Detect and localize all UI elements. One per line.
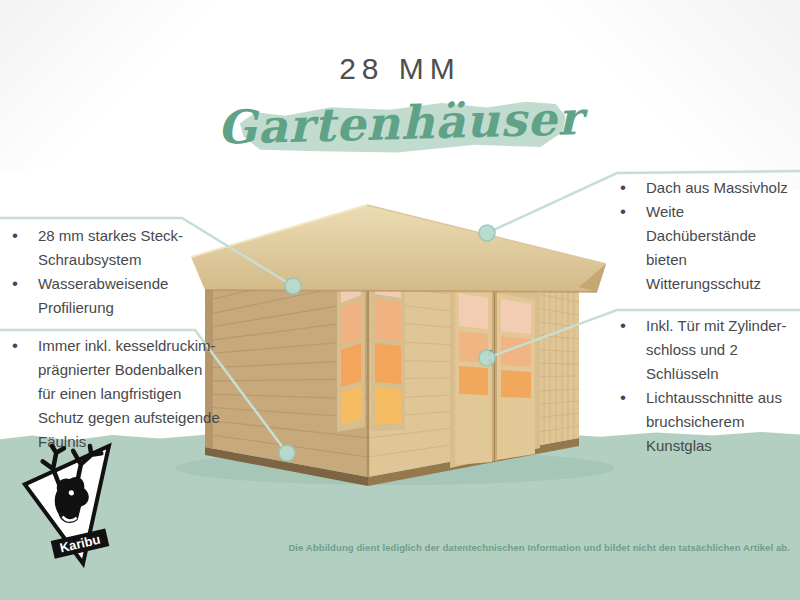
- feature-text: Lichtausschnitte aus bruchsicherem Kunst…: [646, 386, 796, 458]
- feature-item: Weite Dachüberstände bieten Witterungssc…: [620, 200, 796, 296]
- feature-text: Immer inkl. kesseldruckim- prägnierter B…: [38, 334, 220, 454]
- promo-page: 28 MM Gartenhäuser: [0, 0, 800, 600]
- bullet-dot: [620, 200, 646, 296]
- bullet-dot: [12, 334, 38, 454]
- feature-block-construction: 28 mm starkes Steck- Schraubsystem Wasse…: [12, 224, 217, 320]
- feature-text: Inkl. Tür mit Zylinder- schloss und 2 Sc…: [646, 314, 796, 386]
- feature-text: Wasserabweisende Profilierung: [38, 272, 168, 320]
- feature-item: Dach aus Massivholz: [620, 176, 796, 200]
- feature-text: Dach aus Massivholz: [646, 176, 788, 200]
- bullet-dot: [12, 272, 38, 320]
- karibu-logo: Karibu: [13, 435, 130, 576]
- disclaimer-text: Die Abbildung dient lediglich der datent…: [270, 542, 790, 553]
- callout-dot-foundation: [279, 445, 295, 461]
- callout-dot-door: [479, 350, 495, 366]
- feature-item: 28 mm starkes Steck- Schraubsystem: [12, 224, 217, 272]
- feature-text: 28 mm starkes Steck- Schraubsystem: [38, 224, 183, 272]
- callout-dot-roof: [479, 225, 495, 241]
- feature-item: Inkl. Tür mit Zylinder- schloss und 2 Sc…: [620, 314, 796, 386]
- feature-item: Wasserabweisende Profilierung: [12, 272, 217, 320]
- bullet-dot: [620, 314, 646, 386]
- feature-text: Weite Dachüberstände bieten Witterungssc…: [646, 200, 796, 296]
- callout-dots: [279, 225, 495, 461]
- callout-dot-construction: [285, 278, 301, 294]
- bullet-dot: [620, 176, 646, 200]
- feature-item: Lichtausschnitte aus bruchsicherem Kunst…: [620, 386, 796, 458]
- feature-block-door: Inkl. Tür mit Zylinder- schloss und 2 Sc…: [620, 314, 796, 458]
- bullet-dot: [620, 386, 646, 458]
- feature-block-roof: Dach aus Massivholz Weite Dachüberstände…: [620, 176, 796, 296]
- bullet-dot: [12, 224, 38, 272]
